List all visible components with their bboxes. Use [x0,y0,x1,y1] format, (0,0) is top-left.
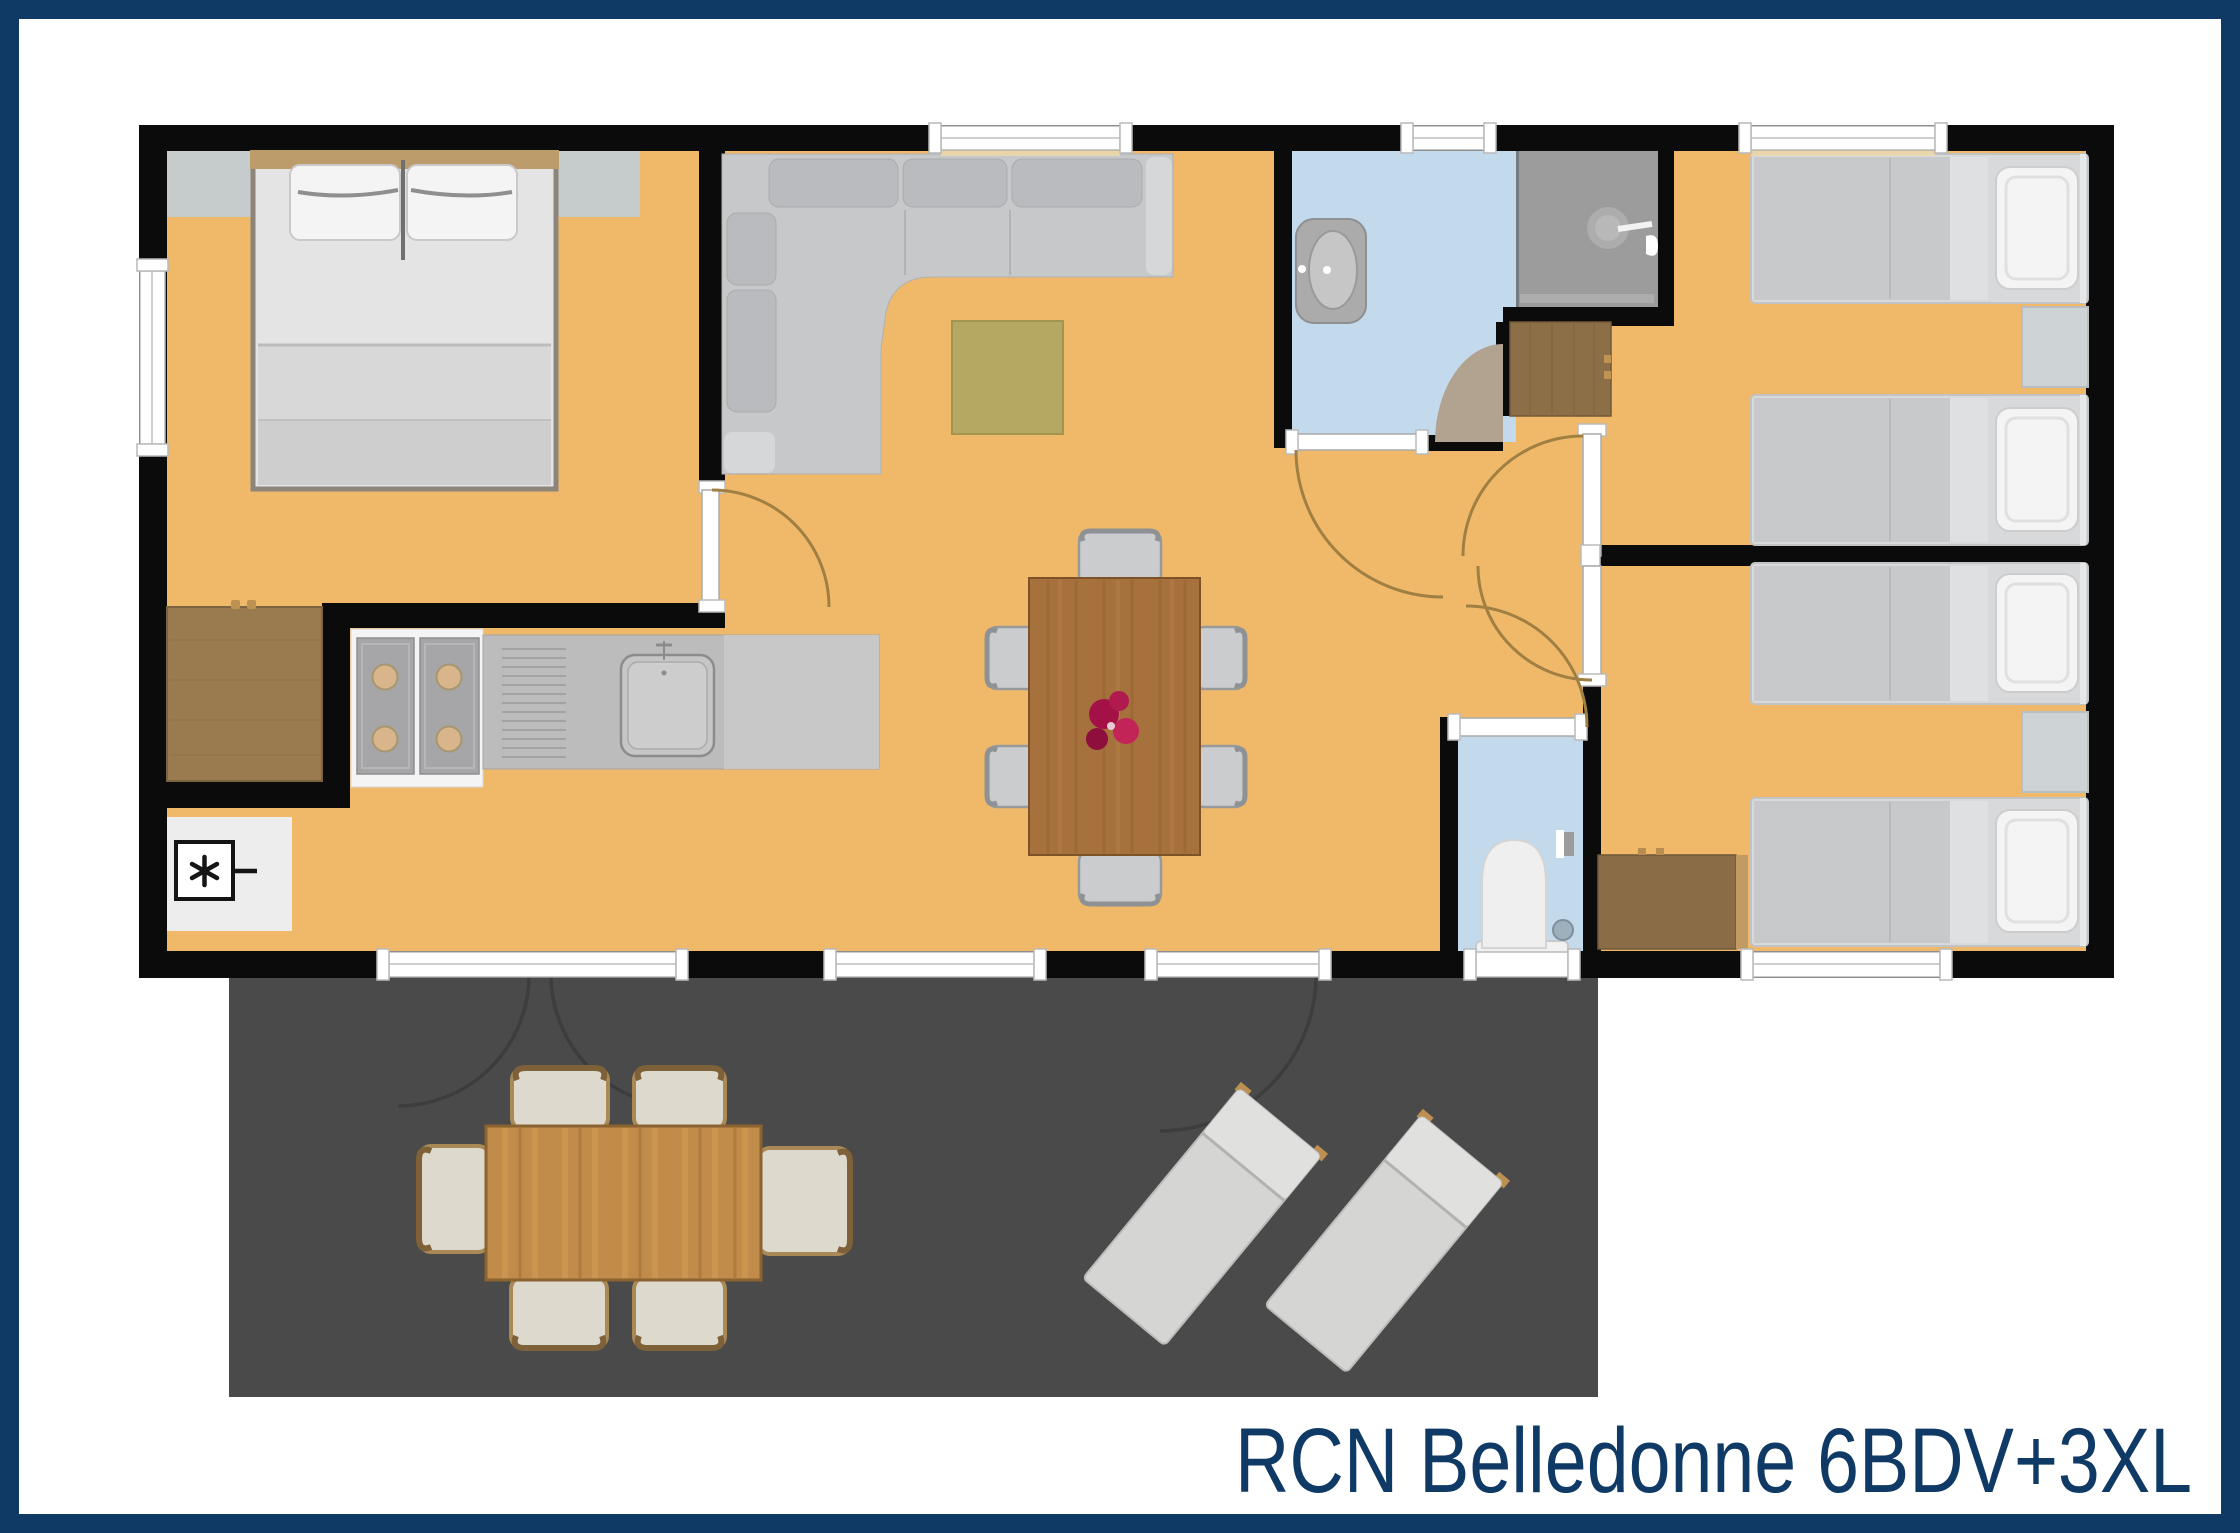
svg-text:RCN Belledonne 6BDV+3XL: RCN Belledonne 6BDV+3XL [1235,1410,2192,1512]
